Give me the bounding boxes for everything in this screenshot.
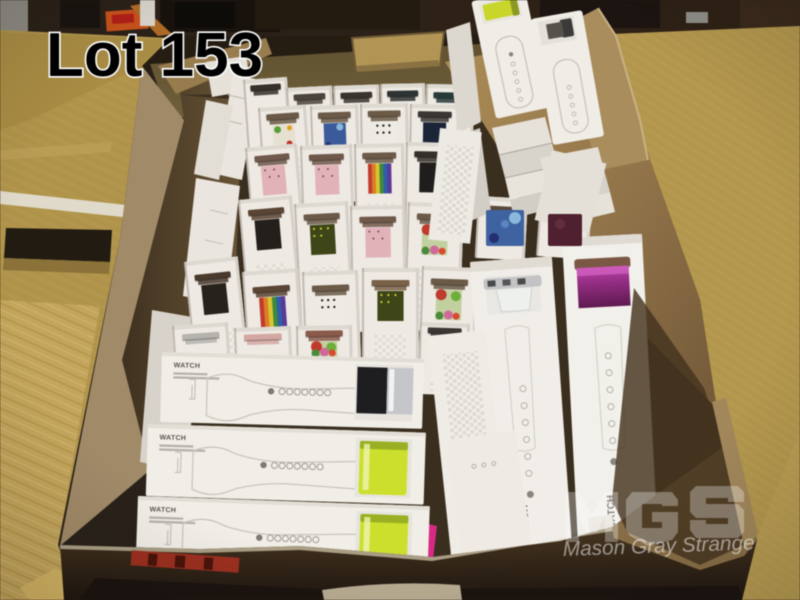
svg-text:Lot 153: Lot 153 [46,21,263,90]
